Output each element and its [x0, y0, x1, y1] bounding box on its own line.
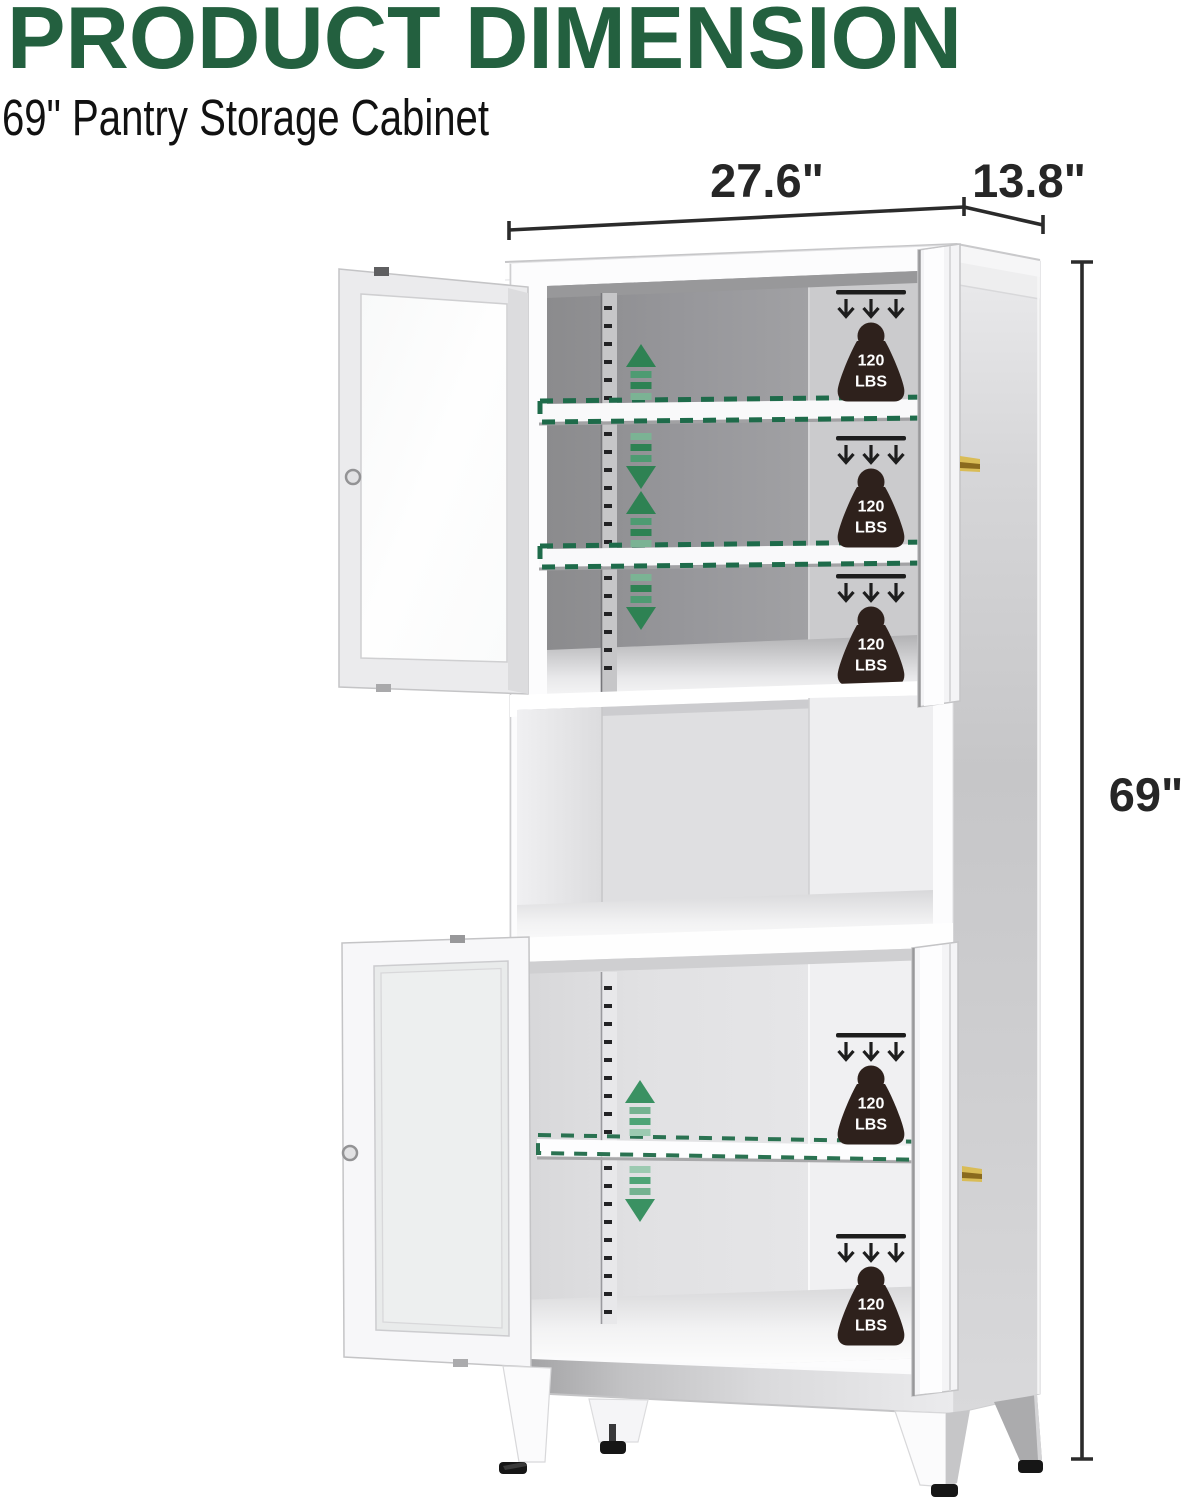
svg-text:69" Pantry Storage Cabinet: 69" Pantry Storage Cabinet [2, 89, 489, 146]
svg-text:13.8": 13.8" [972, 154, 1086, 207]
svg-text:27.6": 27.6" [710, 154, 824, 207]
svg-text:69": 69" [1109, 768, 1181, 821]
svg-text:PRODUCT DIMENSION: PRODUCT DIMENSION [7, 0, 962, 87]
